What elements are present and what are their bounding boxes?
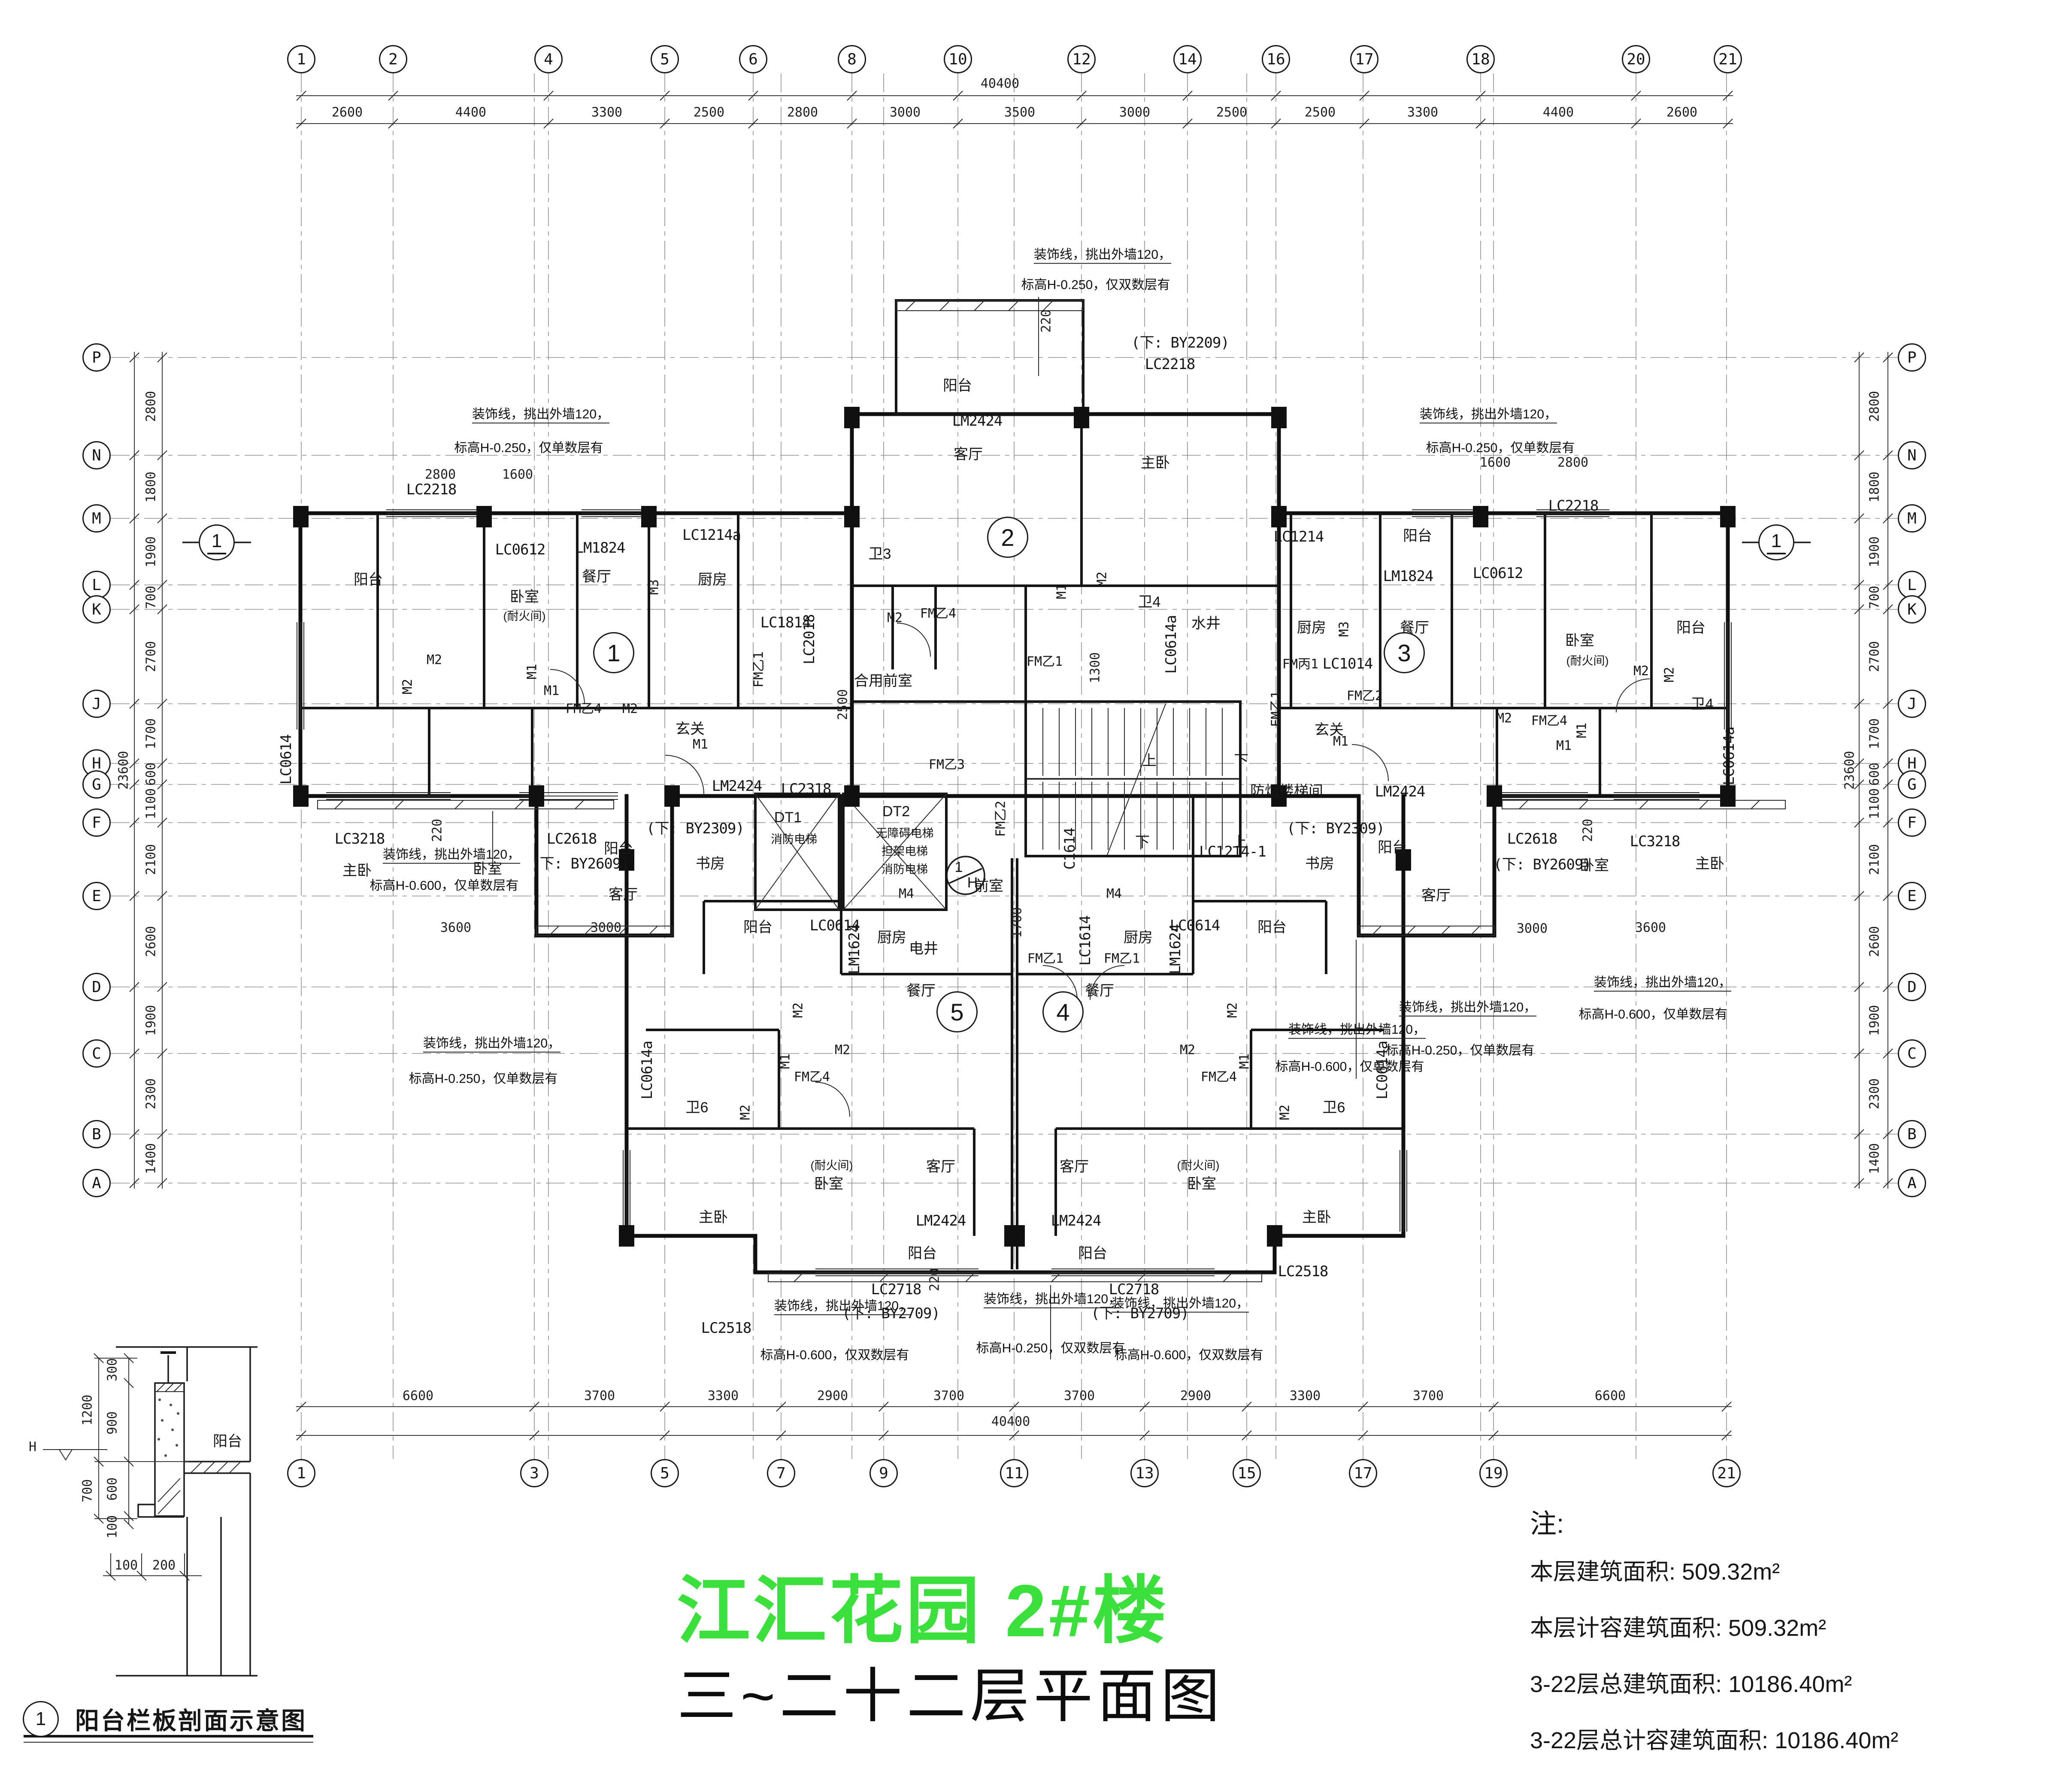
- grid-bubble-right-F: F: [1898, 808, 1926, 837]
- door-code: FM乙4: [1201, 1070, 1237, 1084]
- room-label: 卧室: [1187, 1177, 1216, 1192]
- dim-total-left: 23600: [117, 751, 130, 790]
- detail-label: 200: [152, 1559, 176, 1572]
- unit-bubble-1: 1: [593, 632, 634, 673]
- room-label: 水井: [1191, 616, 1221, 632]
- grid-bubble-left-C: C: [82, 1039, 111, 1068]
- grid-bubble-top-10-text: 10: [948, 51, 967, 68]
- door-code: M2: [622, 702, 638, 716]
- door-code: M1: [525, 664, 539, 679]
- room-label: 阳台: [743, 920, 772, 935]
- local-dim: 1700: [1010, 907, 1024, 938]
- room-label: 合用前室: [854, 674, 912, 689]
- annotation: 标高H-0.600，仅双数层有: [1115, 1348, 1263, 1362]
- dim-bottom: 6600: [1595, 1389, 1626, 1403]
- detail-number: 1: [36, 1708, 46, 1730]
- grid-bubble-left-A-text: A: [92, 1174, 101, 1192]
- note-line: 3-22层总建筑面积: 10186.40m²: [1530, 1665, 2054, 1699]
- grid-bubble-left-D: D: [82, 973, 111, 1001]
- window-code: LC1214-1: [1199, 845, 1266, 860]
- annotation: 装饰线，挑出外墙120，: [472, 408, 609, 424]
- grid-bubble-left-L-text: L: [92, 576, 101, 594]
- dim-left: 1100: [144, 788, 158, 819]
- grid-bubble-bottom-15-text: 15: [1237, 1465, 1256, 1482]
- dim-top: 2500: [1216, 106, 1247, 119]
- dim-bottom: 3300: [1290, 1389, 1321, 1403]
- door-code: FM丙1: [1282, 657, 1318, 671]
- dim-left: 2700: [144, 641, 158, 672]
- door-code: FM乙1: [1027, 952, 1063, 966]
- section-marker: 1: [199, 524, 235, 560]
- dim-right: 1900: [1868, 1005, 1881, 1036]
- grid-bubble-bottom-7-text: 7: [776, 1465, 786, 1482]
- grid-bubble-right-F-text: F: [1907, 814, 1917, 832]
- annotation: 标高H-0.250，仅单数层有: [409, 1072, 558, 1086]
- room-label: 前室: [974, 879, 1003, 894]
- grid-bubble-right-B: B: [1898, 1120, 1926, 1148]
- dim-right: 1800: [1868, 472, 1881, 502]
- room-label: 客厅: [954, 447, 983, 463]
- annotation: 标高H-0.600，仅单数层有: [1275, 1060, 1424, 1074]
- local-dim: 1600: [1480, 456, 1511, 469]
- window-code: LM1824: [1383, 569, 1433, 584]
- grid-bubble-top-14: 14: [1173, 45, 1202, 73]
- dim-right: 2100: [1868, 844, 1881, 875]
- local-dim: 220: [1039, 309, 1053, 333]
- dim-right: 1700: [1868, 718, 1881, 749]
- room-label: 主卧: [1141, 456, 1170, 471]
- dim-right: 2600: [1868, 926, 1881, 957]
- grid-bubble-right-N: N: [1898, 441, 1926, 469]
- local-dim: 2500: [836, 689, 850, 720]
- local-dim: 2800: [1557, 456, 1588, 469]
- annotation: 标高H-0.250，仅单数层有: [454, 441, 603, 455]
- room-label: 阳台: [354, 572, 383, 588]
- section-marker-text: 1: [1767, 530, 1786, 554]
- window-code: LC1214a: [682, 528, 741, 543]
- grid-bubble-left-B: B: [82, 1120, 111, 1148]
- grid-bubble-top-10: 10: [944, 45, 972, 73]
- window-code: LC0614: [279, 735, 294, 785]
- door-code: M2: [1226, 1002, 1239, 1018]
- section-marker: 1: [1758, 524, 1794, 560]
- local-dim: 3000: [591, 921, 621, 935]
- room-label: 担架电梯: [882, 845, 928, 857]
- door-code: M1: [1055, 584, 1069, 599]
- dim-right: 700: [1868, 586, 1881, 609]
- door-code: M2: [1180, 1043, 1195, 1057]
- dim-left: 2600: [144, 926, 158, 957]
- annotation: 标高H-0.600，仅双数层有: [760, 1348, 909, 1362]
- unit-bubble-1-text: 1: [607, 639, 620, 667]
- door-code: M1: [1238, 1053, 1251, 1069]
- grid-bubble-top-17-text: 17: [1355, 51, 1373, 68]
- annotation: 装饰线，挑出外墙120，: [1288, 1023, 1426, 1039]
- door-code: M2: [401, 679, 415, 694]
- grid-bubble-bottom-13-text: 13: [1135, 1465, 1154, 1482]
- grid-bubble-left-D-text: D: [92, 978, 101, 996]
- grid-bubble-top-18: 18: [1466, 45, 1495, 73]
- door-code: FM乙1: [1269, 691, 1283, 727]
- unit-bubble-4: 4: [1042, 991, 1084, 1032]
- room-label: 阳台: [908, 1246, 937, 1262]
- grid-bubble-top-20: 20: [1622, 45, 1650, 73]
- grid-bubble-left-P: P: [82, 343, 111, 372]
- grid-bubble-left-F-text: F: [92, 814, 101, 832]
- sheet-name-title: 三~二十二层平面图: [677, 1648, 1224, 1734]
- door-code: M2: [427, 653, 442, 667]
- unit-bubble-2: 2: [987, 517, 1028, 558]
- dim-right: 1100: [1868, 788, 1881, 819]
- local-dim: 220: [928, 1268, 942, 1291]
- grid-bubble-left-A: A: [82, 1169, 111, 1197]
- door-code: M2: [1633, 664, 1649, 678]
- grid-bubble-top-5-text: 5: [660, 51, 669, 68]
- note-line: 本层计容建筑面积: 509.32m²: [1530, 1609, 2054, 1643]
- window-code: LC0614a: [1164, 615, 1179, 674]
- room-label: 客厅: [1060, 1159, 1089, 1175]
- room-label: 上: [1142, 754, 1157, 769]
- annotation: 装饰线，挑出外墙120，: [1112, 1297, 1249, 1313]
- grid-bubble-left-K-text: K: [92, 601, 101, 618]
- core-marker-top: 1: [955, 860, 963, 875]
- unit-bubble-4-text: 4: [1056, 998, 1069, 1026]
- grid-bubble-left-C-text: C: [92, 1045, 101, 1062]
- grid-bubble-right-G-text: G: [1907, 776, 1917, 793]
- window-code: LC1814: [760, 615, 811, 631]
- detail-label: H: [29, 1440, 36, 1454]
- door-code: FM乙4: [794, 1070, 830, 1084]
- room-label: 主卧: [1302, 1210, 1331, 1226]
- grid-bubble-top-12: 12: [1067, 45, 1096, 73]
- room-label: 玄关: [676, 722, 705, 737]
- grid-bubble-bottom-3-text: 3: [530, 1465, 539, 1482]
- grid-bubble-bottom-1: 1: [287, 1459, 315, 1487]
- annotation: 装饰线，挑出外墙120，: [1594, 976, 1731, 992]
- grid-bubble-left-H-text: H: [92, 755, 101, 772]
- dim-left: 1700: [144, 718, 158, 749]
- project-title: 江汇花园 2#楼: [676, 1550, 1169, 1658]
- grid-bubble-right-G: G: [1898, 770, 1926, 799]
- dim-right: 2700: [1868, 641, 1881, 672]
- dim-right: 2300: [1868, 1078, 1881, 1109]
- unit-bubble-5: 5: [936, 991, 978, 1032]
- window-code: LC0614a: [640, 1041, 655, 1099]
- grid-bubble-top-1-text: 1: [297, 51, 306, 68]
- window-code: LC2518: [1278, 1264, 1328, 1280]
- grid-bubble-bottom-5-text: 5: [660, 1465, 669, 1482]
- annotation: 装饰线，挑出外墙120，: [1420, 408, 1557, 424]
- annotation: 装饰线，挑出外墙120，: [984, 1293, 1121, 1308]
- window-code: (下: BY2309): [646, 821, 744, 837]
- unit-bubble-2-text: 2: [1001, 524, 1014, 551]
- door-code: FM乙4: [566, 702, 602, 716]
- local-dim: 2800: [425, 468, 456, 481]
- dim-bottom: 2900: [817, 1389, 848, 1403]
- door-code: M2: [791, 1002, 805, 1018]
- grid-bubble-left-P-text: P: [92, 349, 101, 366]
- door-code: FM乙3: [929, 758, 965, 772]
- door-code: FM乙4: [1531, 714, 1567, 728]
- annotation: 标高H-0.600，仅单数层有: [1579, 1008, 1728, 1021]
- unit-bubble-3: 3: [1384, 632, 1425, 673]
- room-label: 客厅: [1421, 888, 1451, 904]
- room-label: 卧室: [1565, 633, 1594, 649]
- dim-bottom: 3700: [584, 1389, 615, 1403]
- grid-bubble-left-N: N: [82, 441, 111, 469]
- grid-bubble-bottom-9: 9: [869, 1459, 898, 1487]
- grid-bubble-right-P-text: P: [1907, 349, 1917, 366]
- room-label: (耐火间): [1177, 1159, 1220, 1171]
- room-label: 阳台: [1078, 1246, 1107, 1262]
- window-code: LC0612: [495, 542, 545, 558]
- room-label: 书房: [696, 857, 725, 872]
- grid-bubble-left-J-text: J: [92, 695, 101, 713]
- detail-number-bubble: 1: [23, 1701, 59, 1737]
- room-label: DT2: [882, 804, 910, 820]
- room-label: 厨房: [1124, 930, 1153, 946]
- grid-bubble-right-D-text: D: [1907, 978, 1917, 996]
- grid-bubble-top-20-text: 20: [1627, 51, 1645, 68]
- grid-bubble-bottom-17: 17: [1349, 1459, 1377, 1487]
- grid-bubble-right-A-text: A: [1907, 1174, 1917, 1192]
- room-label: 卧室: [473, 862, 502, 877]
- window-code: LC0614a: [1722, 727, 1737, 785]
- dim-left: 1900: [144, 1005, 158, 1036]
- window-code: LC3218: [335, 832, 385, 847]
- window-code: LM1824: [575, 541, 625, 556]
- grid-bubble-right-L-text: L: [1907, 576, 1917, 594]
- grid-bubble-bottom-21: 21: [1712, 1459, 1741, 1487]
- grid-bubble-right-J: J: [1898, 690, 1926, 718]
- window-code: LC0612: [1473, 566, 1523, 581]
- grid-bubble-top-14-text: 14: [1178, 51, 1197, 68]
- grid-bubble-right-M: M: [1898, 504, 1926, 533]
- room-label: 主卧: [1695, 857, 1724, 872]
- area-notes: 注: 本层建筑面积: 509.32m²本层计容建筑面积: 509.32m²3-2…: [1530, 1502, 2054, 1777]
- annotation: 标高H-0.250，仅双数层有: [976, 1341, 1125, 1355]
- dim-total-bottom: 40400: [991, 1415, 1030, 1429]
- grid-bubble-bottom-17-text: 17: [1354, 1465, 1372, 1482]
- window-code: LM2424: [916, 1214, 966, 1229]
- window-code: LM2424: [1375, 784, 1425, 800]
- room-label: 无障碍电梯: [876, 827, 934, 839]
- grid-bubble-left-M-text: M: [92, 510, 101, 527]
- window-code: LC2518: [701, 1321, 751, 1336]
- door-code: M1: [1333, 735, 1348, 748]
- grid-bubble-top-18-text: 18: [1471, 51, 1490, 68]
- grid-bubble-top-12-text: 12: [1072, 51, 1091, 68]
- window-code: (下: BY2209): [1131, 336, 1229, 351]
- local-dim: 1300: [1088, 652, 1102, 683]
- door-code: M3: [1337, 621, 1351, 637]
- room-label: 主卧: [342, 863, 372, 879]
- grid-bubble-top-21: 21: [1714, 45, 1742, 73]
- room-label: 主卧: [699, 1210, 728, 1226]
- grid-bubble-bottom-1-text: 1: [297, 1465, 306, 1482]
- room-label: 卫6: [686, 1100, 709, 1116]
- room-label: 阳台: [943, 378, 972, 394]
- dim-top: 2500: [694, 106, 724, 119]
- room-label: (耐火间): [503, 610, 546, 622]
- grid-bubble-top-21-text: 21: [1718, 51, 1737, 68]
- room-label: 阳台: [1403, 529, 1432, 544]
- door-code: M3: [647, 579, 661, 595]
- dim-top: 4400: [455, 106, 486, 119]
- dim-bottom: 2900: [1180, 1389, 1211, 1403]
- dim-total-top: 40400: [981, 77, 1019, 91]
- door-code: FM乙1: [1104, 952, 1140, 966]
- grid-bubble-bottom-21-text: 21: [1717, 1465, 1736, 1482]
- window-code: LC2218: [406, 482, 457, 498]
- grid-bubble-right-C: C: [1898, 1039, 1926, 1068]
- grid-bubble-bottom-3: 3: [520, 1459, 548, 1487]
- grid-bubble-top-1: 1: [287, 45, 315, 73]
- window-code: LM1624: [1168, 924, 1184, 975]
- dim-top: 4400: [1543, 106, 1574, 119]
- grid-bubble-top-6-text: 6: [748, 51, 758, 68]
- grid-bubble-right-B-text: B: [1907, 1126, 1917, 1143]
- grid-bubble-top-5: 5: [651, 45, 679, 73]
- local-dim: 220: [1581, 819, 1595, 842]
- grid-bubble-bottom-11: 11: [1000, 1459, 1028, 1487]
- door-code: FM乙1: [1027, 655, 1063, 669]
- door-code: FM乙2: [1347, 689, 1383, 703]
- window-code: LM2424: [712, 779, 762, 794]
- unit-bubble-5-text: 5: [950, 998, 963, 1026]
- room-label: 厨房: [698, 572, 727, 588]
- grid-bubble-bottom-5: 5: [651, 1459, 679, 1487]
- window-code: LC2718: [871, 1282, 921, 1298]
- detail-label: 100: [115, 1559, 138, 1572]
- dim-right: 600: [1868, 763, 1881, 786]
- local-dim: 3600: [440, 921, 471, 935]
- door-code: M1: [1575, 723, 1589, 738]
- dim-top: 3300: [1407, 106, 1438, 119]
- grid-bubble-left-M: M: [82, 504, 111, 533]
- window-code: (下: BY2609): [1493, 857, 1591, 873]
- grid-bubble-top-16: 16: [1262, 45, 1290, 73]
- grid-bubble-left-G-text: G: [92, 776, 101, 793]
- grid-bubble-left-E-text: E: [92, 887, 101, 905]
- door-code: M2: [835, 1043, 850, 1057]
- dim-total-right: 23600: [1843, 751, 1857, 790]
- local-dim: 3000: [1517, 922, 1548, 935]
- grid-bubble-left-B-text: B: [92, 1126, 101, 1143]
- room-label: DT1: [774, 810, 802, 826]
- room-label: 卧室: [814, 1177, 843, 1192]
- door-code: FM乙1: [752, 651, 766, 687]
- dim-top: 2500: [1305, 106, 1336, 119]
- door-code: M2: [887, 611, 903, 625]
- annotation: 标高H-0.250，仅单数层有: [1386, 1044, 1535, 1057]
- note-line: 本层建筑面积: 509.32m²: [1530, 1553, 2054, 1586]
- door-code: M1: [693, 738, 708, 751]
- door-code: M1: [779, 1053, 792, 1069]
- grid-bubble-top-17: 17: [1350, 45, 1378, 73]
- window-code: LC2218: [1145, 357, 1195, 372]
- grid-bubble-right-E-text: E: [1907, 887, 1917, 905]
- detail-label: 700: [81, 1479, 94, 1502]
- grid-bubble-left-J: J: [82, 690, 111, 718]
- detail-label: 600: [106, 1477, 119, 1501]
- room-label: 卫4: [1691, 697, 1714, 712]
- window-code: LC3218: [1630, 834, 1680, 850]
- dim-left: 1900: [144, 536, 158, 567]
- room-label: 客厅: [926, 1159, 955, 1175]
- grid-bubble-right-M-text: M: [1907, 510, 1917, 527]
- grid-bubble-right-K-text: K: [1907, 601, 1917, 618]
- dim-left: 700: [144, 586, 158, 609]
- grid-bubble-right-K: K: [1898, 595, 1926, 624]
- room-label: 电井: [909, 941, 938, 957]
- grid-bubble-bottom-7: 7: [767, 1459, 795, 1487]
- grid-bubble-top-16-text: 16: [1266, 51, 1285, 68]
- local-dim: 220: [430, 819, 444, 842]
- window-code: (下: BY2309): [1287, 821, 1384, 837]
- dim-left: 600: [144, 763, 158, 786]
- room-label: 消防电梯: [882, 863, 928, 875]
- annotation: 装饰线，挑出外墙120，: [423, 1037, 560, 1053]
- detail-label: 阳台: [213, 1434, 242, 1450]
- room-label: 阳台: [1676, 621, 1706, 636]
- grid-bubble-top-8: 8: [838, 45, 866, 73]
- room-label: 客厅: [609, 887, 638, 903]
- room-label: 卫6: [1323, 1100, 1345, 1116]
- local-dim: 3600: [1635, 921, 1666, 935]
- dim-bottom: 3700: [1064, 1389, 1095, 1403]
- detail-label: 900: [106, 1411, 119, 1435]
- dim-top: 3300: [591, 106, 622, 119]
- grid-bubble-bottom-11-text: 11: [1005, 1465, 1023, 1482]
- section-marker-text: 1: [207, 530, 226, 554]
- room-label: 消防电梯: [771, 833, 817, 845]
- annotation: 标高H-0.250，仅双数层有: [1021, 278, 1170, 292]
- grid-bubble-left-N-text: N: [92, 447, 101, 464]
- grid-bubble-left-G: G: [82, 770, 111, 799]
- door-code: M2: [1497, 711, 1512, 725]
- notes-heading: 注:: [1530, 1502, 2054, 1541]
- unit-bubble-3-text: 3: [1397, 639, 1411, 667]
- room-label: 卫4: [1138, 595, 1161, 610]
- window-code: LC2618: [1507, 832, 1557, 847]
- window-code: LM2424: [1051, 1214, 1101, 1229]
- door-code: M4: [1106, 887, 1122, 901]
- annotation: 装饰线，挑出外墙120，: [774, 1299, 912, 1315]
- window-code: LC1214: [1274, 530, 1324, 545]
- dim-right: 1900: [1868, 536, 1881, 567]
- dim-bottom: 3700: [933, 1389, 964, 1403]
- room-label: 书房: [1305, 857, 1334, 872]
- dim-top: 2600: [332, 106, 363, 119]
- annotation: 标高H-0.250，仅单数层有: [1426, 441, 1575, 455]
- grid-bubble-top-2: 2: [379, 45, 407, 73]
- room-label: 厨房: [877, 930, 906, 946]
- floor-plan-sheet: 江汇花园 2#楼 三~二十二层平面图 注: 本层建筑面积: 509.32m²本层…: [0, 0, 2060, 1792]
- dim-top: 2800: [787, 106, 818, 119]
- dim-left: 2100: [144, 844, 158, 875]
- grid-bubble-top-4-text: 4: [544, 51, 553, 68]
- dim-left: 2800: [144, 391, 158, 422]
- grid-bubble-left-K: K: [82, 595, 111, 624]
- room-label: 下: [1135, 835, 1150, 851]
- dim-top: 3500: [1004, 106, 1035, 119]
- detail-label: 300: [106, 1358, 119, 1381]
- dim-right: 2800: [1868, 391, 1881, 422]
- grid-bubble-right-C-text: C: [1907, 1045, 1917, 1062]
- room-label: 餐厅: [906, 984, 936, 999]
- grid-bubble-bottom-19-text: 19: [1484, 1465, 1503, 1482]
